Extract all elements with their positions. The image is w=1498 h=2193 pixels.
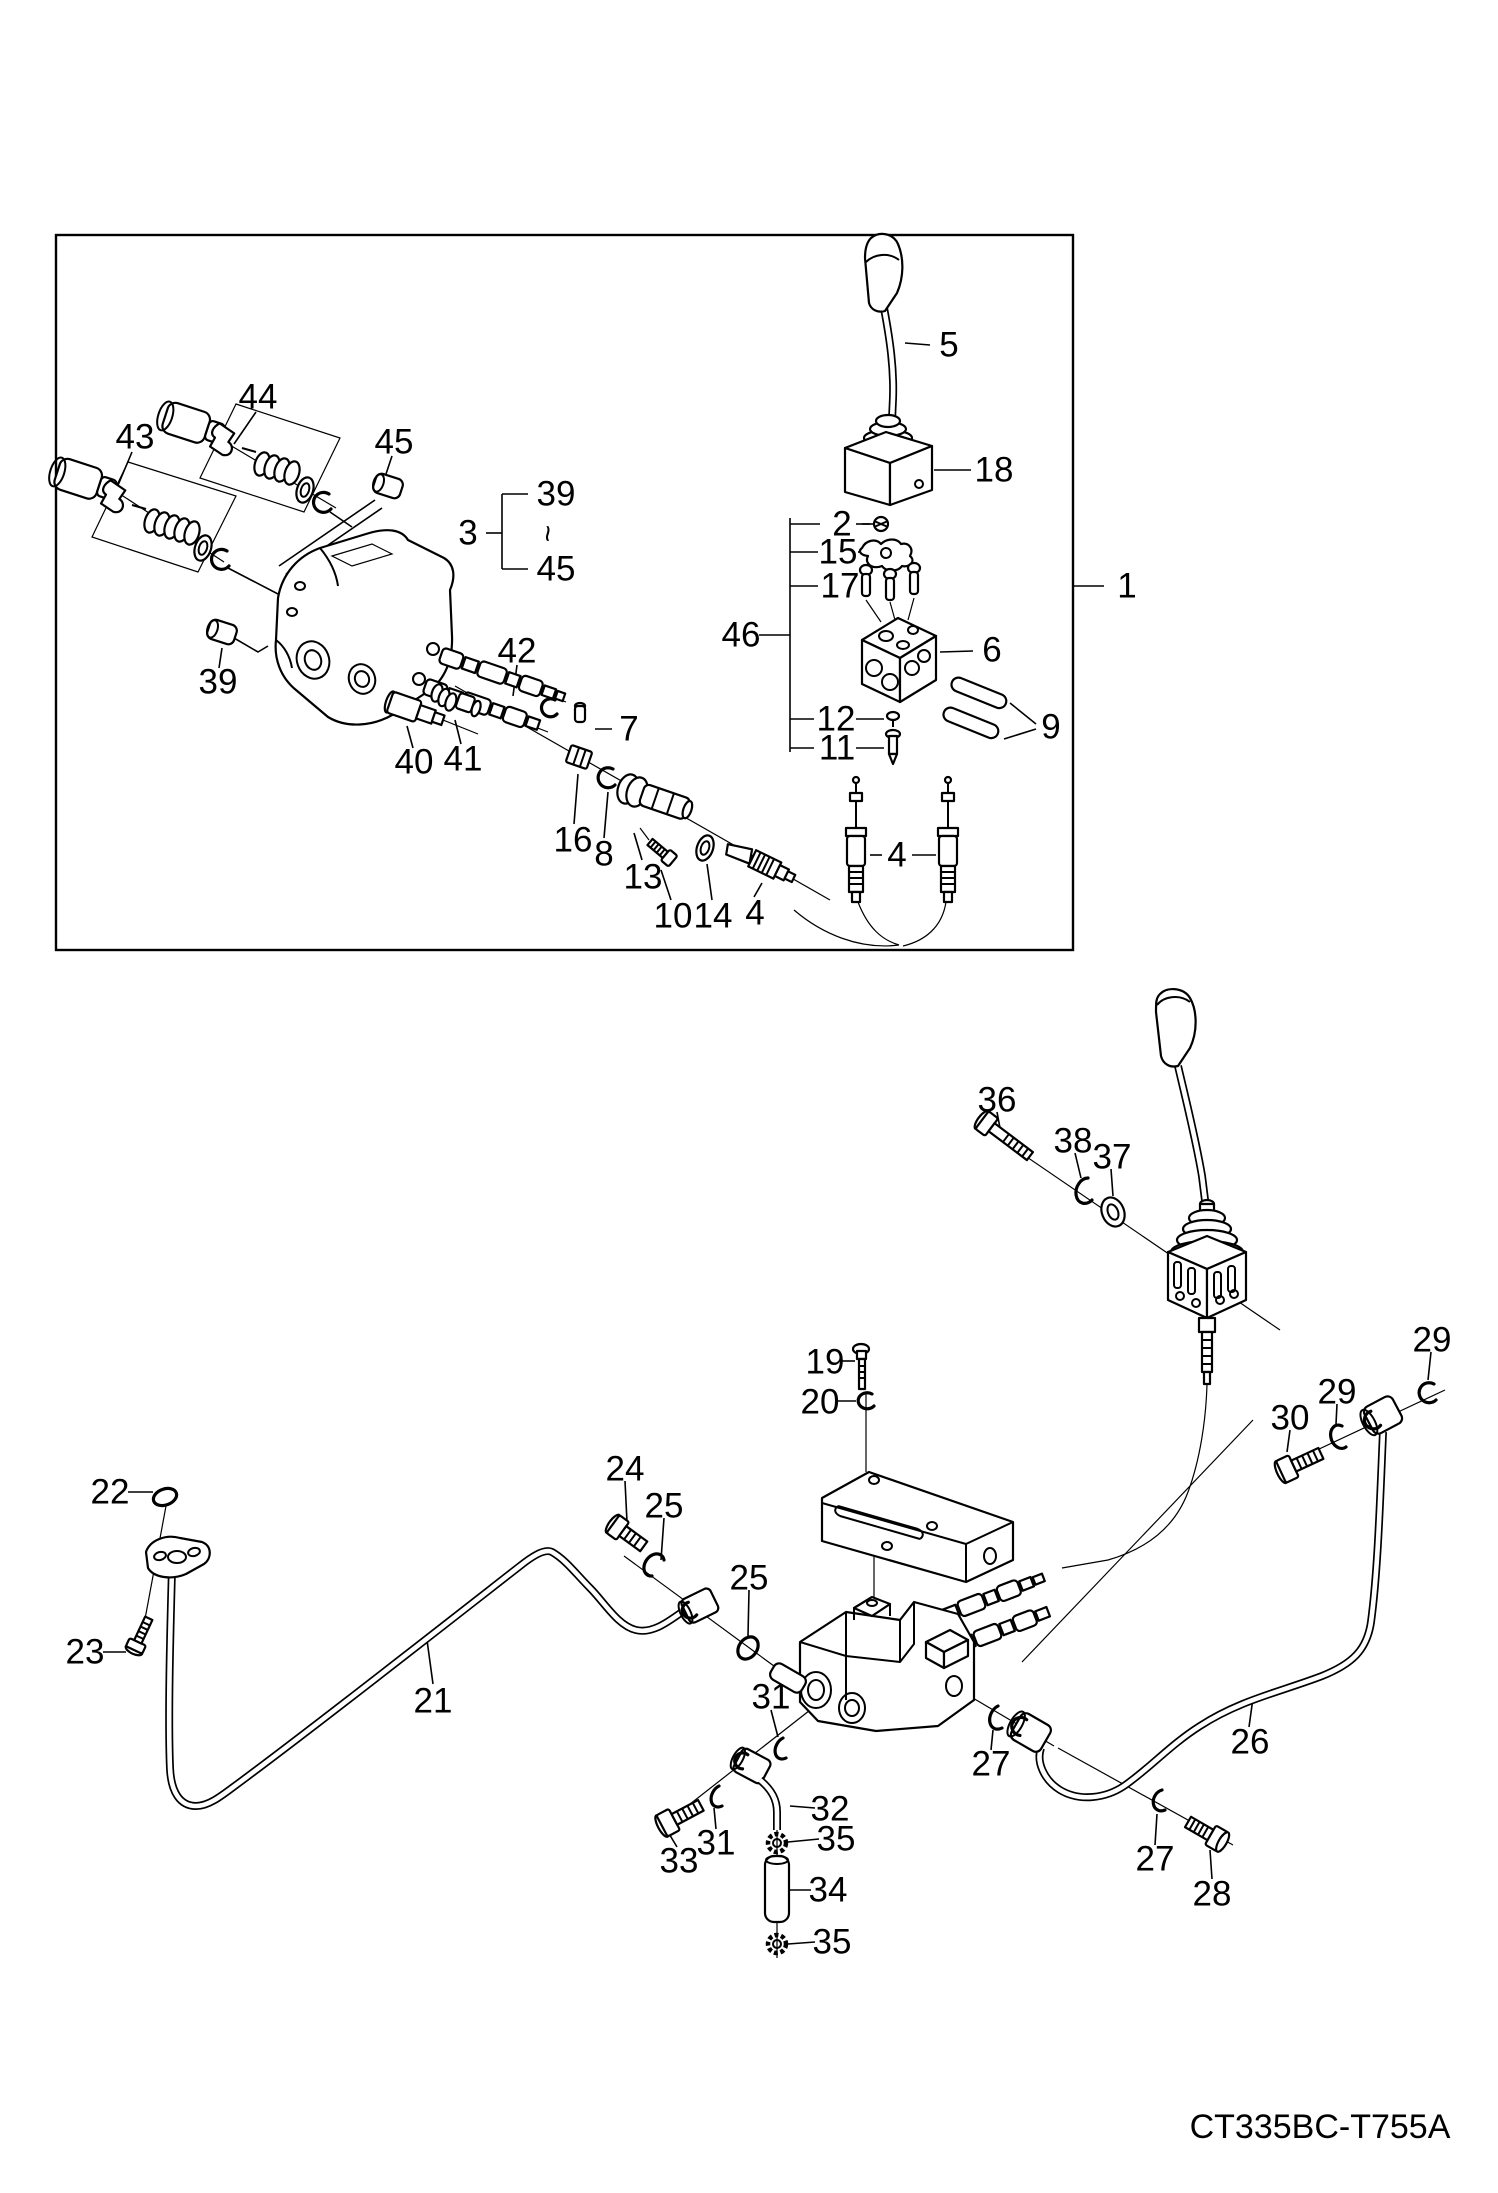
callout-5: 5 bbox=[939, 328, 958, 363]
spring bbox=[142, 507, 203, 546]
callout-23: 23 bbox=[66, 1635, 105, 1670]
diagram-artwork bbox=[0, 0, 1498, 2193]
callout-17: 17 bbox=[821, 569, 860, 604]
valve-block-6 bbox=[862, 618, 936, 702]
control-cable bbox=[1062, 1384, 1207, 1568]
pin-7 bbox=[575, 703, 585, 722]
drawing-code: CT335BC-T755A bbox=[1190, 2110, 1451, 2144]
pin-12 bbox=[887, 712, 899, 727]
mount-bracket bbox=[822, 1472, 1013, 1582]
callout-29-mid: 29 bbox=[1318, 1375, 1357, 1410]
callout-3: 3 bbox=[458, 516, 477, 551]
callout-8: 8 bbox=[594, 837, 613, 872]
nut-16 bbox=[566, 745, 593, 769]
washer-31-bottom bbox=[711, 1786, 722, 1807]
callout-41: 41 bbox=[444, 742, 483, 777]
callout-37: 37 bbox=[1093, 1140, 1132, 1175]
flange bbox=[146, 1537, 210, 1578]
callout-26: 26 bbox=[1231, 1725, 1270, 1760]
callout-45-range: 45 bbox=[537, 552, 576, 587]
callout-34: 34 bbox=[809, 1873, 848, 1908]
callout-4-cables: 4 bbox=[887, 838, 906, 873]
callout-7: 7 bbox=[619, 712, 638, 747]
callout-28: 28 bbox=[1193, 1877, 1232, 1912]
lever-knob bbox=[865, 234, 902, 312]
callout-22: 22 bbox=[91, 1475, 130, 1510]
callout-45-plug: 45 bbox=[375, 425, 414, 460]
callout-29-right: 29 bbox=[1413, 1323, 1452, 1358]
callout-24: 24 bbox=[606, 1452, 645, 1487]
callout-43: 43 bbox=[116, 420, 155, 455]
callout-39-plug: 39 bbox=[199, 665, 238, 700]
o-ring-22 bbox=[151, 1485, 179, 1508]
callout-4-end: 4 bbox=[745, 896, 764, 931]
pipe-32 bbox=[727, 1745, 777, 1830]
control-valve-bottom bbox=[768, 1570, 1051, 1731]
washer-25-b bbox=[734, 1633, 763, 1663]
pipe-21 bbox=[146, 1537, 720, 1806]
callout-35-up: 35 bbox=[817, 1822, 856, 1857]
callout-1: 1 bbox=[1117, 569, 1136, 604]
spring bbox=[252, 450, 303, 486]
joystick-top bbox=[845, 234, 932, 505]
pilot-small-parts bbox=[860, 517, 920, 600]
snap-ring bbox=[541, 699, 557, 717]
joystick-bottom bbox=[1062, 989, 1246, 1568]
rod-11 bbox=[886, 730, 900, 764]
bolt-28 bbox=[1183, 1812, 1232, 1853]
callout-35-low: 35 bbox=[813, 1925, 852, 1960]
cable bbox=[938, 777, 958, 902]
callout-13: 13 bbox=[624, 860, 663, 895]
washer-37 bbox=[1097, 1194, 1129, 1230]
snap-ring-8 bbox=[598, 768, 615, 788]
cables-4 bbox=[794, 777, 958, 946]
callout-9: 9 bbox=[1041, 710, 1060, 745]
washer-27-right bbox=[1153, 1790, 1165, 1811]
callout-tilde: ~ bbox=[538, 514, 556, 549]
callout-38: 38 bbox=[1054, 1124, 1093, 1159]
pipe-26 bbox=[1003, 1394, 1404, 1797]
cable-end-4 bbox=[723, 838, 797, 887]
bolt-24 bbox=[603, 1513, 650, 1555]
screw-23 bbox=[124, 1614, 157, 1657]
plug-45 bbox=[371, 472, 405, 500]
callout-21: 21 bbox=[414, 1684, 453, 1719]
callout-6: 6 bbox=[982, 633, 1001, 668]
callout-25-a: 25 bbox=[645, 1489, 684, 1524]
callout-42: 42 bbox=[498, 634, 537, 669]
range-tilde-glyph: ~ bbox=[532, 525, 562, 543]
leader-lines-bottom bbox=[103, 1112, 1445, 1958]
callout-36: 36 bbox=[978, 1083, 1017, 1118]
callout-40: 40 bbox=[395, 745, 434, 780]
callout-15: 15 bbox=[819, 535, 858, 570]
sleeve-9 bbox=[941, 676, 1008, 741]
callout-27-right: 27 bbox=[1136, 1842, 1175, 1877]
plug-39 bbox=[205, 618, 239, 646]
screw-19 bbox=[853, 1344, 869, 1389]
parts-diagram-page: 5 18 2 15 17 46 6 9 12 11 3 39 ~ 45 44 4… bbox=[0, 0, 1498, 2193]
callout-44: 44 bbox=[239, 380, 278, 415]
callout-25-b: 25 bbox=[730, 1561, 769, 1596]
callout-33: 33 bbox=[660, 1844, 699, 1879]
callout-27-left: 27 bbox=[972, 1747, 1011, 1782]
washer-29-mid bbox=[1331, 1425, 1346, 1448]
snap-ring-29-right bbox=[1419, 1383, 1436, 1403]
callout-18: 18 bbox=[975, 453, 1014, 488]
callout-31-top: 31 bbox=[752, 1680, 791, 1715]
spool-end-13 bbox=[614, 772, 695, 822]
cable bbox=[846, 777, 866, 902]
callout-16: 16 bbox=[554, 823, 593, 858]
callout-14: 14 bbox=[694, 899, 733, 934]
callout-30: 30 bbox=[1271, 1401, 1310, 1436]
washer-31-top bbox=[775, 1738, 786, 1759]
callout-31-bot: 31 bbox=[697, 1826, 736, 1861]
washer-14 bbox=[693, 833, 717, 863]
callout-20: 20 bbox=[801, 1385, 840, 1420]
callout-19: 19 bbox=[806, 1345, 845, 1380]
spool-kit-43 bbox=[46, 455, 236, 572]
bolt-30 bbox=[1272, 1443, 1326, 1485]
plunger-17 bbox=[860, 563, 920, 600]
callout-46: 46 bbox=[722, 618, 761, 653]
leader-lines-top bbox=[100, 343, 1104, 900]
hose-34 bbox=[765, 1856, 789, 1922]
callout-39-range: 39 bbox=[537, 477, 576, 512]
callout-11: 11 bbox=[819, 731, 855, 766]
washer-25-a bbox=[644, 1554, 664, 1576]
callout-10: 10 bbox=[654, 899, 693, 934]
